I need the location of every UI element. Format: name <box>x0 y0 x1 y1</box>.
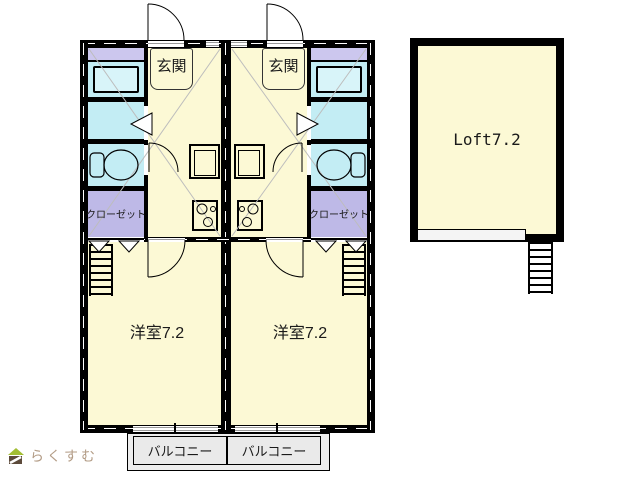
floorplan-canvas: 玄関 玄関 クローゼット クローゼット 洋室7.2 洋室7.2 Loft7.2 … <box>0 0 640 480</box>
room-door-swing-right <box>266 240 303 277</box>
watermark: らくすむ <box>7 447 98 465</box>
stove-burners-right <box>240 204 259 227</box>
folding-door-washroom-right <box>297 113 318 135</box>
loft-label: Loft7.2 <box>437 130 537 148</box>
toilet-icon-right <box>317 150 365 180</box>
balcony-label-right: バルコニー <box>227 443 321 458</box>
toilet-door-swing-left <box>149 143 178 172</box>
folding-door-washroom-left <box>131 113 152 135</box>
symbols-overlay <box>0 0 640 480</box>
entrance-label-left: 玄関 <box>150 52 193 78</box>
entrance-door-swing-right <box>267 4 303 40</box>
room-door-swing-left <box>148 240 185 277</box>
watermark-text: らくすむ <box>30 446 98 466</box>
entrance-label-right: 玄関 <box>262 52 305 78</box>
closet-label-left: クローゼット <box>84 206 148 220</box>
entrance-door-swing-left <box>148 4 184 40</box>
toilet-door-swing-right <box>273 143 302 172</box>
balcony-label-left: バルコニー <box>133 443 227 458</box>
closet-door-left <box>89 241 139 252</box>
house-icon <box>7 447 25 465</box>
room-label-left: 洋室7.2 <box>107 321 207 340</box>
closet-door-right <box>316 241 366 252</box>
closet-label-right: クローゼット <box>307 206 371 220</box>
room-label-right: 洋室7.2 <box>250 321 350 340</box>
